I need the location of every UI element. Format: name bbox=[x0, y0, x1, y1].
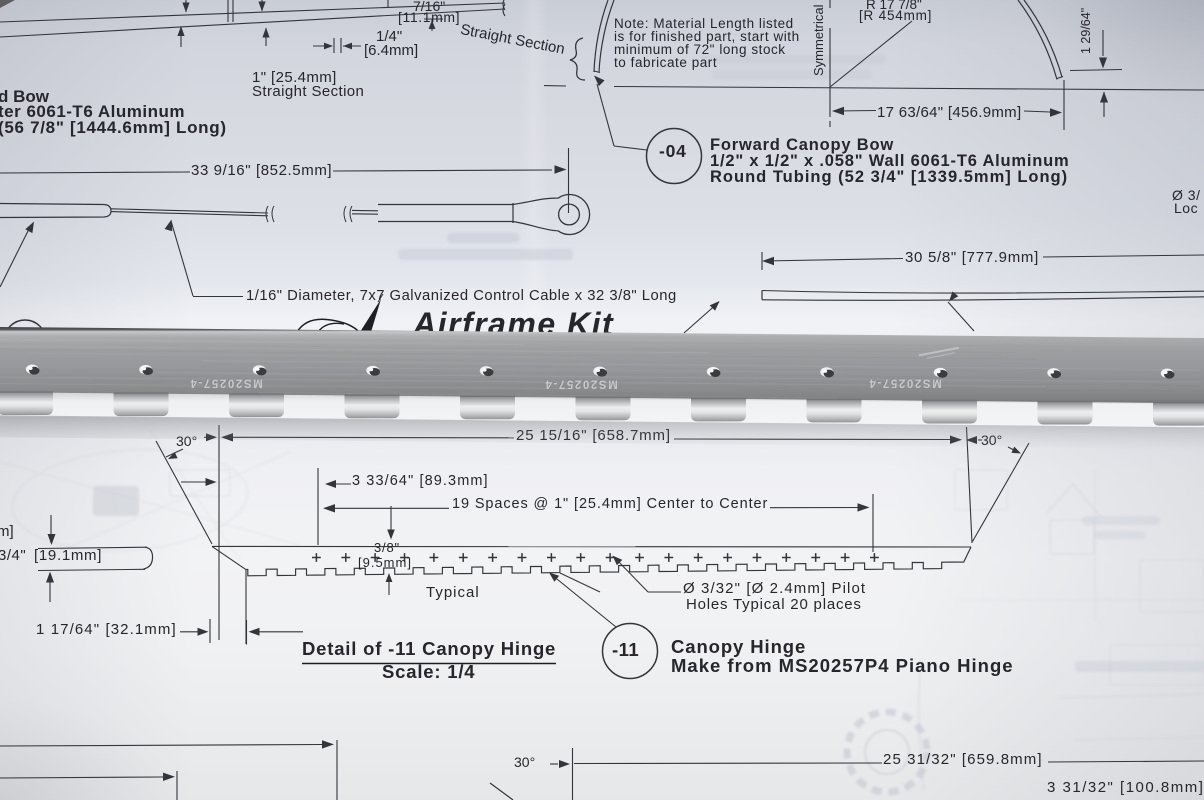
svg-text:MS20257-4: MS20257-4 bbox=[544, 377, 618, 389]
svg-text:MS20257-4: MS20257-4 bbox=[868, 376, 942, 388]
svg-text:MS20257-4: MS20257-4 bbox=[189, 376, 263, 388]
